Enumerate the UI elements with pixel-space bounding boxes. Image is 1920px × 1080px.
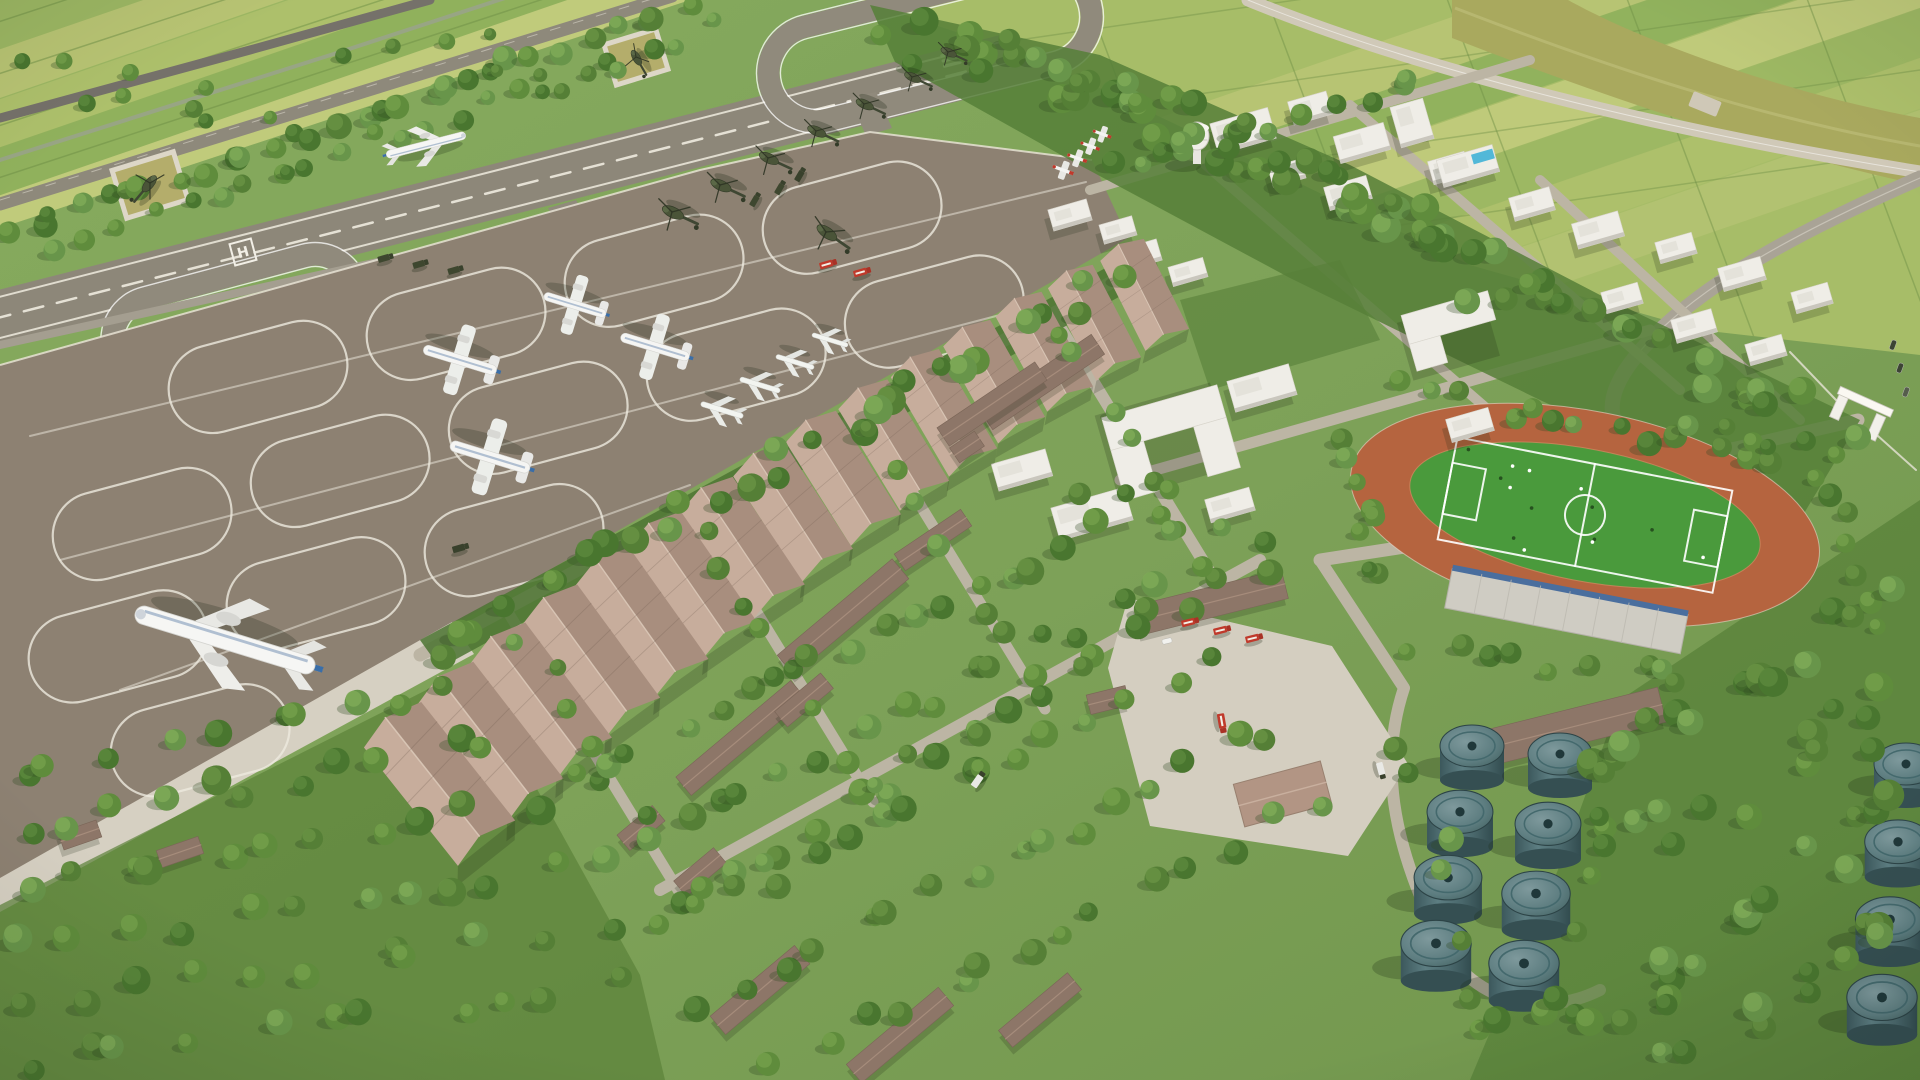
aerial-render-stage: H (0, 0, 1920, 1080)
vignette-overlay (0, 0, 1920, 1080)
airbase-aerial-scene: H (0, 0, 1920, 1080)
